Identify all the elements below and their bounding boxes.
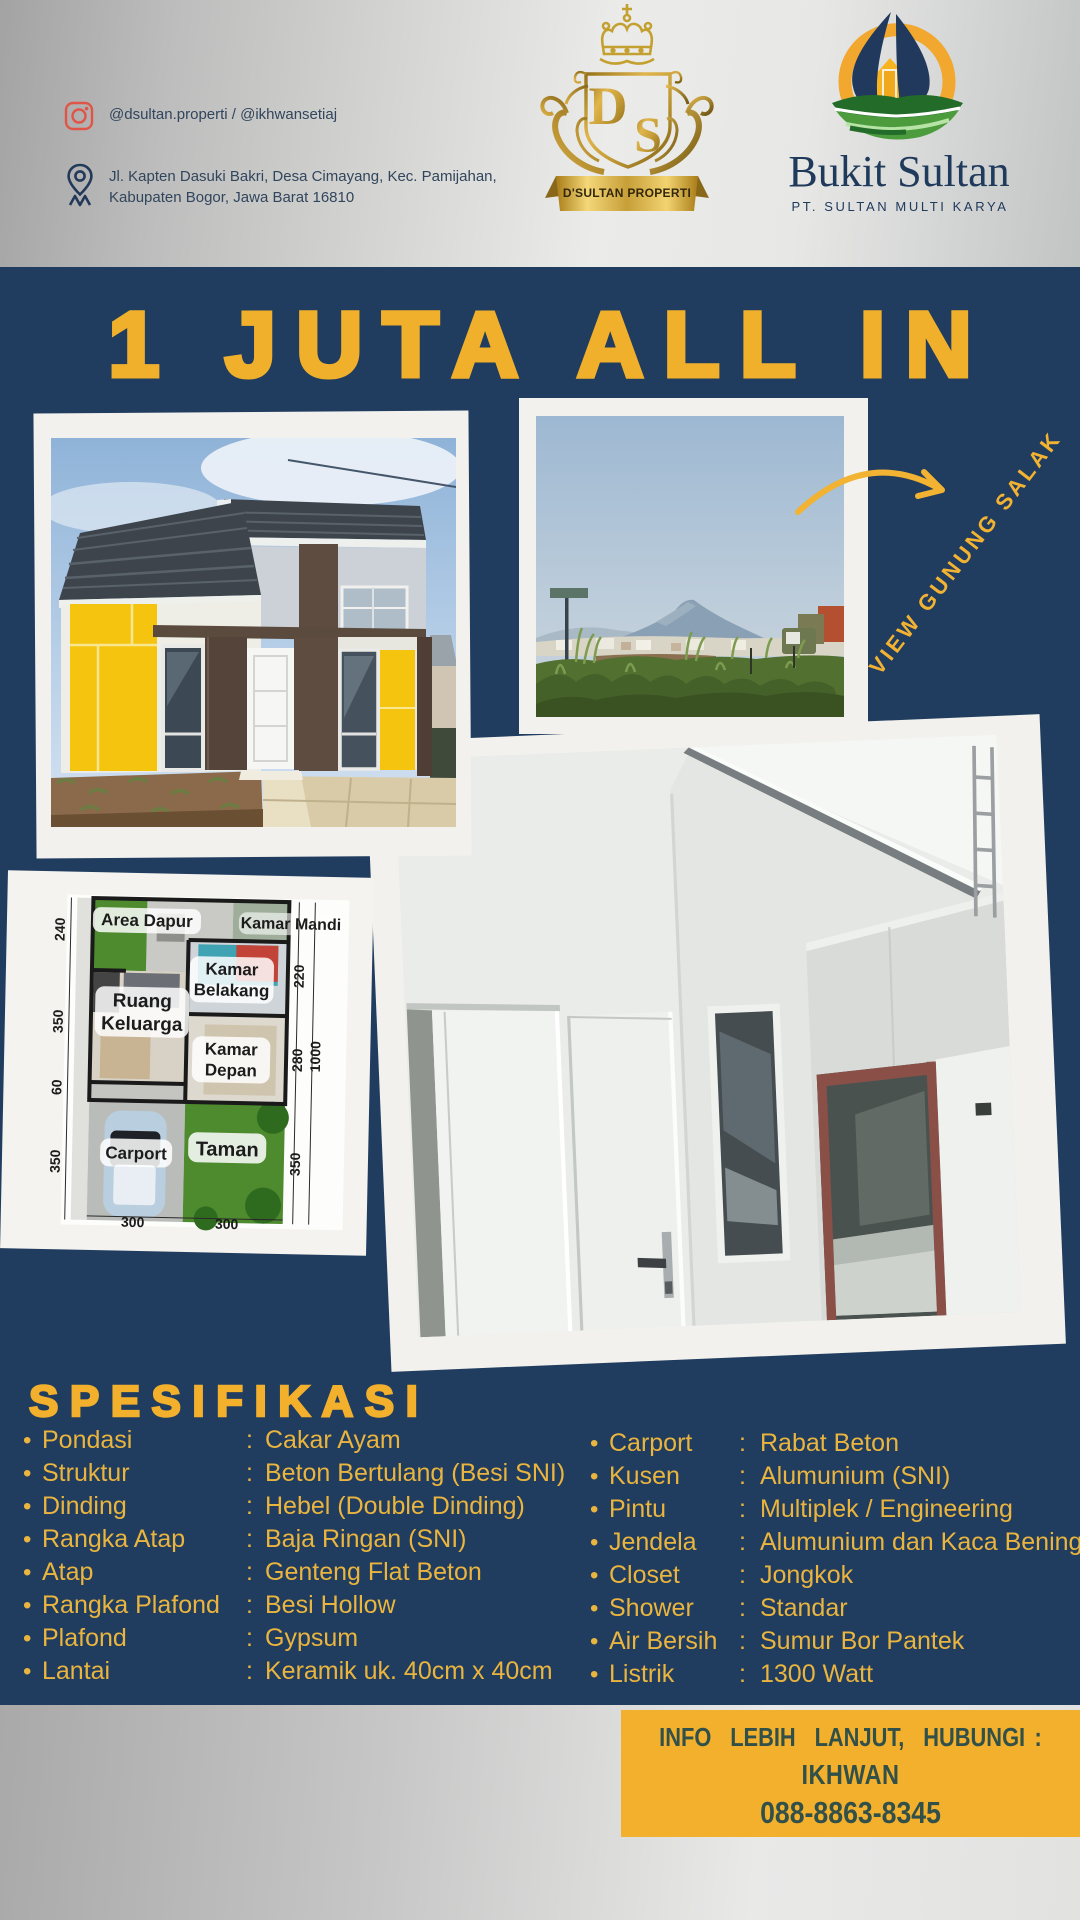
- svg-text:240: 240: [52, 917, 68, 941]
- svg-text:Depan: Depan: [205, 1060, 257, 1080]
- svg-text:S: S: [634, 106, 662, 162]
- svg-text:Kamar: Kamar: [205, 1039, 259, 1059]
- svg-text:Kamar Mandi: Kamar Mandi: [241, 915, 342, 934]
- svg-text:300: 300: [215, 1216, 239, 1232]
- svg-text:Ruang: Ruang: [113, 990, 173, 1012]
- svg-text:350: 350: [50, 1009, 66, 1033]
- svg-text:300: 300: [121, 1214, 145, 1230]
- svg-text:350: 350: [47, 1149, 63, 1173]
- svg-text:Kamar: Kamar: [205, 959, 259, 979]
- svg-text:D'SULTAN PROPERTI: D'SULTAN PROPERTI: [563, 186, 691, 200]
- svg-text:Taman: Taman: [195, 1138, 258, 1161]
- svg-text:Bukit Sultan: Bukit Sultan: [788, 147, 1009, 196]
- svg-text:Area Dapur: Area Dapur: [101, 910, 193, 931]
- svg-text:PT. SULTAN MULTI KARYA: PT. SULTAN MULTI KARYA: [791, 199, 1008, 214]
- svg-text:350: 350: [287, 1152, 303, 1176]
- svg-text:220: 220: [291, 964, 307, 988]
- svg-text:280: 280: [289, 1048, 305, 1072]
- svg-text:1000: 1000: [307, 1041, 324, 1073]
- svg-text:D: D: [589, 76, 628, 136]
- svg-text:Keluarga: Keluarga: [101, 1013, 183, 1036]
- svg-text:Carport: Carport: [105, 1143, 167, 1163]
- svg-text:Belakang: Belakang: [194, 980, 270, 1001]
- svg-text:60: 60: [48, 1079, 64, 1095]
